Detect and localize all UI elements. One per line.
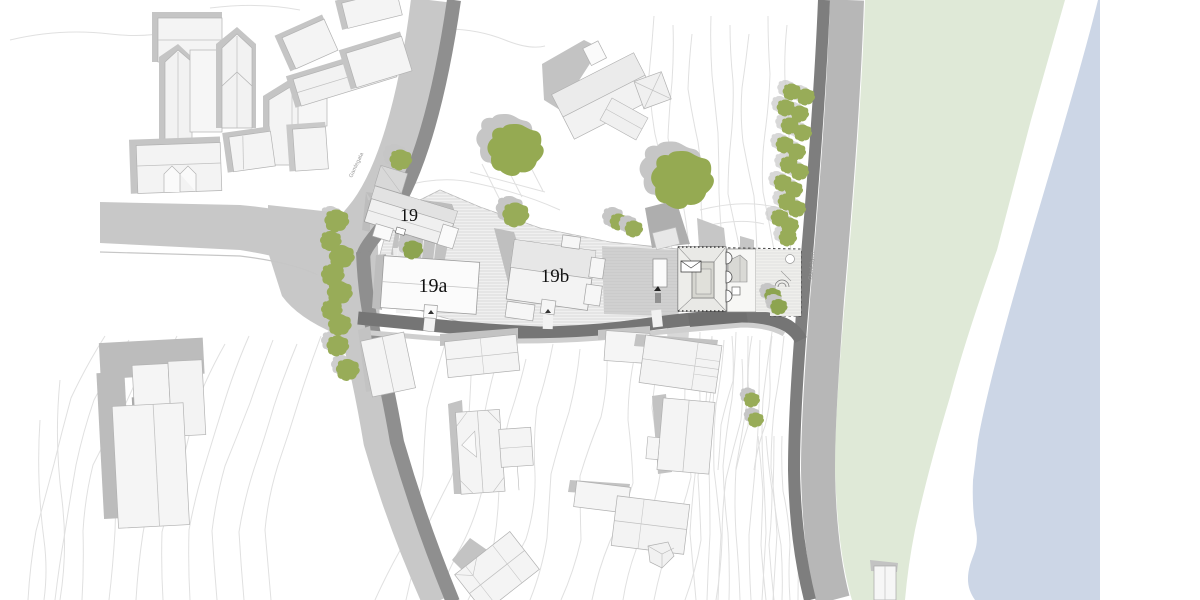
svg-text:19a: 19a [419, 275, 448, 297]
svg-text:19: 19 [400, 205, 418, 225]
svg-text:19b: 19b [541, 266, 570, 287]
